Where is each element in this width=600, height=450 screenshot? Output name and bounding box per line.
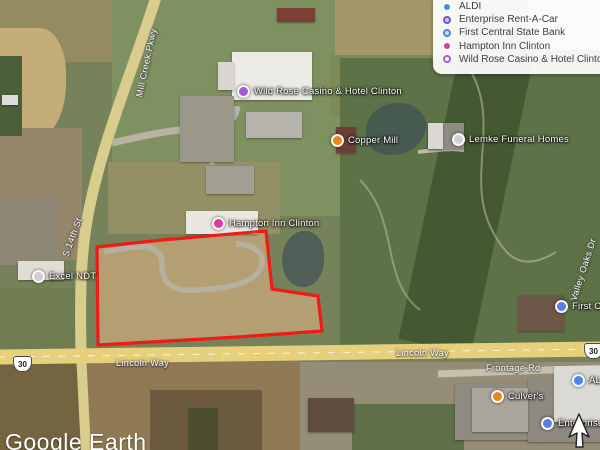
poi-label: Culver's bbox=[508, 391, 544, 402]
poi-first-central-bank[interactable]: First Central State Bank bbox=[555, 300, 600, 313]
building bbox=[308, 398, 354, 432]
building bbox=[2, 95, 18, 105]
tree-line bbox=[188, 408, 218, 450]
cursor-icon bbox=[567, 413, 593, 450]
place-marker-icon bbox=[443, 3, 451, 11]
building-hotel bbox=[246, 112, 302, 138]
building bbox=[218, 62, 234, 90]
poi-label: Excel NDT bbox=[49, 271, 96, 282]
legend-item-wild-rose-casino[interactable]: Wild Rose Casino & Hotel Clinton bbox=[443, 53, 600, 66]
poi-copper-mill[interactable]: Copper Mill bbox=[331, 134, 398, 147]
google-earth-watermark: Google Earth bbox=[5, 429, 147, 450]
terrain-field bbox=[0, 288, 76, 354]
poi-label: Lemke Funeral Homes bbox=[469, 134, 569, 145]
legend-item-label: Hampton Inn Clinton bbox=[459, 41, 550, 52]
poi-label: Copper Mill bbox=[348, 135, 398, 146]
legend-item-hampton-inn[interactable]: Hampton Inn Clinton bbox=[443, 40, 600, 53]
building bbox=[428, 123, 443, 149]
poi-marker-icon bbox=[572, 374, 585, 387]
us-30-shield: 30 bbox=[13, 356, 32, 372]
poi-label: First Central State Bank bbox=[572, 301, 600, 312]
legend-item-aldi[interactable]: ALDI bbox=[443, 0, 600, 13]
poi-excel-ndt[interactable]: Excel NDT bbox=[32, 270, 96, 283]
poi-label: Hampton Inn Clinton bbox=[229, 218, 319, 229]
place-marker-icon bbox=[443, 16, 451, 24]
legend-item-label: Wild Rose Casino & Hotel Clinton bbox=[459, 54, 600, 65]
poi-label: Wild Rose Casino & Hotel Clinton bbox=[254, 86, 402, 97]
parking-lot bbox=[206, 166, 254, 194]
shield-label: 30 bbox=[589, 347, 598, 356]
poi-marker-icon bbox=[331, 134, 344, 147]
building bbox=[277, 8, 315, 22]
legend-item-label: First Central State Bank bbox=[459, 27, 565, 38]
legend-item-first-central-bank[interactable]: First Central State Bank bbox=[443, 26, 600, 39]
place-marker-icon bbox=[443, 29, 451, 37]
us-30-shield: 30 bbox=[584, 343, 600, 359]
terrain-grass bbox=[352, 404, 464, 450]
poi-culvers[interactable]: Culver's bbox=[491, 390, 544, 403]
poi-marker-icon bbox=[32, 270, 45, 283]
pond bbox=[282, 231, 324, 287]
legend-item-enterprise[interactable]: Enterprise Rent-A-Car bbox=[443, 13, 600, 26]
terrain-field bbox=[0, 195, 60, 265]
legend-item-label: ALDI bbox=[459, 1, 481, 12]
poi-marker-icon bbox=[491, 390, 504, 403]
poi-label: ALDI bbox=[589, 375, 600, 386]
poi-marker-icon bbox=[452, 133, 465, 146]
poi-marker-icon bbox=[555, 300, 568, 313]
poi-marker-icon bbox=[237, 85, 250, 98]
road-label-frontage-rd: Frontage Rd bbox=[486, 363, 540, 373]
poi-lemke-funeral-homes[interactable]: Lemke Funeral Homes bbox=[452, 133, 569, 146]
poi-wild-rose-casino[interactable]: Wild Rose Casino & Hotel Clinton bbox=[237, 85, 402, 98]
legend-item-label: Enterprise Rent-A-Car bbox=[459, 14, 558, 25]
place-marker-icon bbox=[443, 55, 451, 63]
poi-aldi[interactable]: ALDI bbox=[572, 374, 600, 387]
poi-hampton-inn[interactable]: Hampton Inn Clinton bbox=[212, 217, 319, 230]
road-label-lincoln-way-east: Lincoln Way bbox=[396, 348, 449, 358]
road-label-lincoln-way-west: Lincoln Way bbox=[116, 358, 169, 368]
poi-marker-icon bbox=[541, 417, 554, 430]
parking-lot bbox=[180, 96, 234, 162]
place-marker-icon bbox=[443, 42, 451, 50]
places-legend: ALDI Enterprise Rent-A-Car First Central… bbox=[433, 0, 600, 74]
shield-label: 30 bbox=[18, 360, 27, 369]
satellite-map[interactable]: Wild Rose Casino & Hotel Clinton Copper … bbox=[0, 0, 600, 450]
poi-marker-icon bbox=[212, 217, 225, 230]
